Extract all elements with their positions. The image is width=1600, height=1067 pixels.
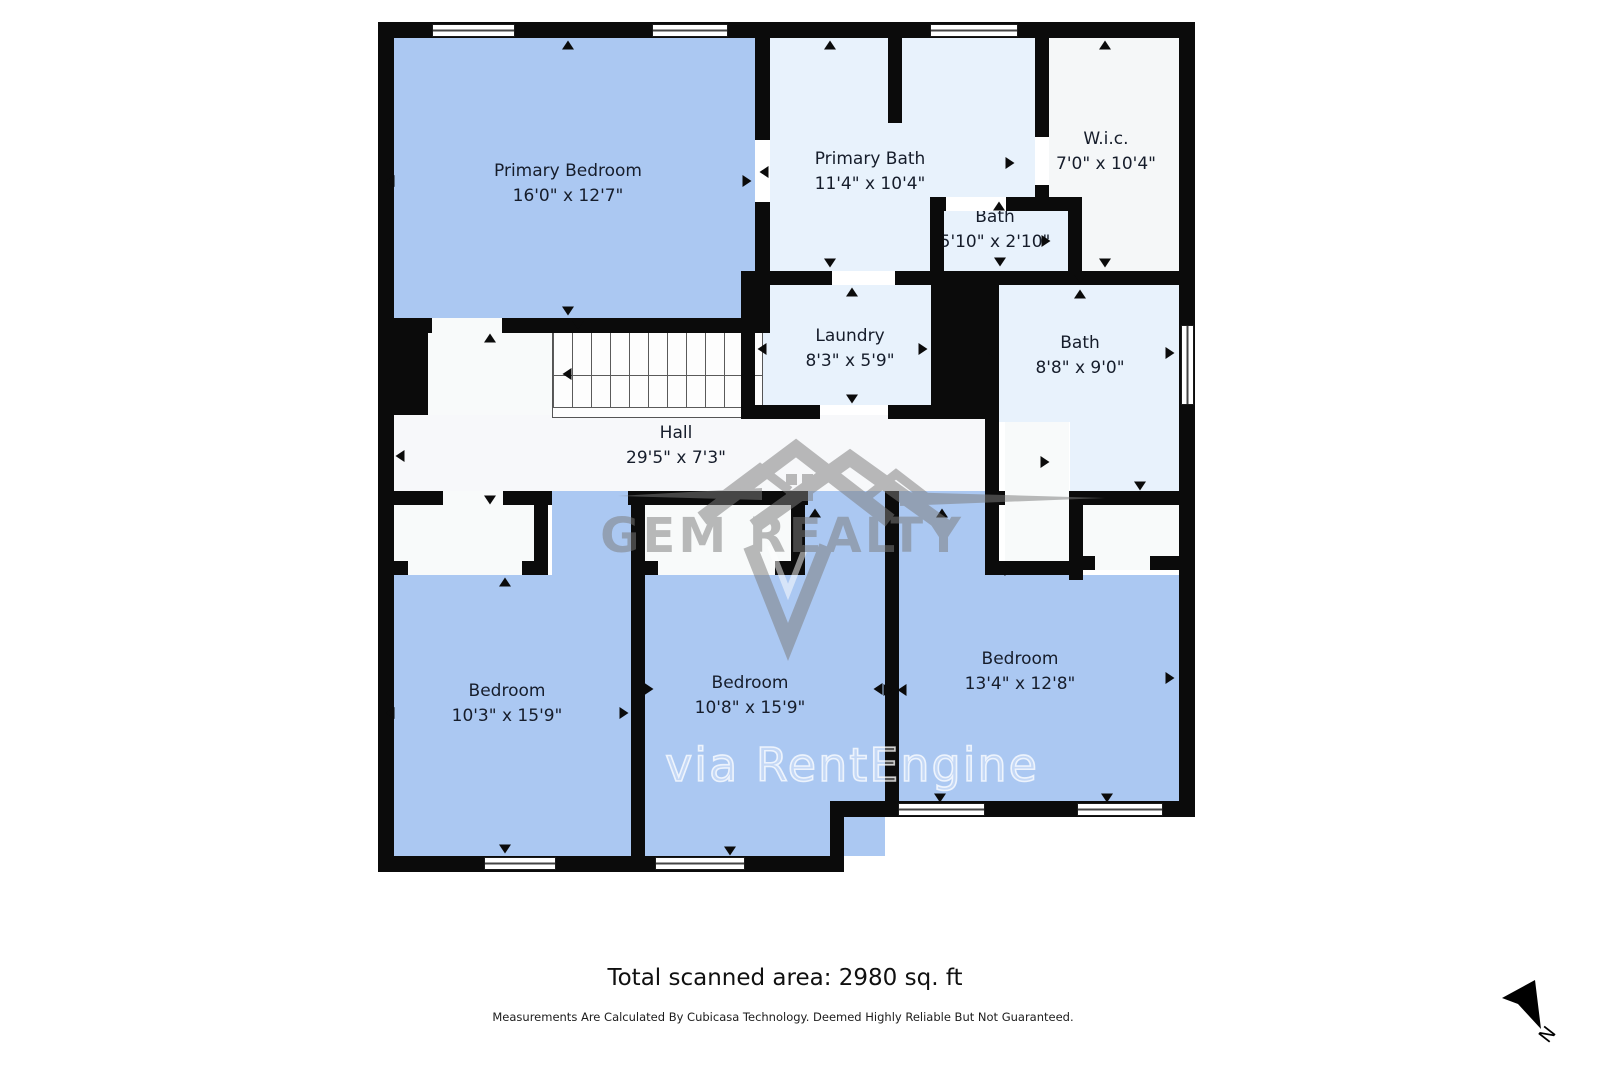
wall-segment bbox=[830, 801, 844, 872]
measure-arrow bbox=[645, 683, 654, 695]
stair-direction-arrow bbox=[563, 368, 572, 380]
total-scanned-area: Total scanned area: 2980 sq. ft bbox=[607, 965, 962, 991]
wall-segment bbox=[931, 271, 985, 419]
measure-arrow bbox=[484, 334, 496, 343]
wall-segment bbox=[741, 271, 832, 285]
room-dimensions: 10'8" x 15'9" bbox=[695, 696, 806, 721]
floorplan-canvas: Primary Bedroom16'0" x 12'7"Primary Bath… bbox=[0, 0, 1600, 1067]
measure-arrow bbox=[1074, 275, 1086, 284]
room-label-bedroom-7: Bedroom10'3" x 15'9" bbox=[452, 679, 563, 729]
wall-segment bbox=[1068, 197, 1082, 271]
window bbox=[432, 24, 515, 37]
wall-segment bbox=[522, 561, 548, 575]
gem-realty-watermark-logo: GEM REALTY bbox=[600, 430, 1120, 670]
wall-segment bbox=[394, 491, 443, 505]
measure-arrow bbox=[846, 395, 858, 404]
measure-arrow bbox=[1042, 235, 1051, 247]
measure-arrow bbox=[562, 41, 574, 50]
room-name: W.i.c. bbox=[1056, 127, 1156, 152]
room-dimensions: 16'0" x 12'7" bbox=[494, 184, 642, 209]
wall-segment bbox=[888, 405, 945, 419]
measure-arrow bbox=[993, 202, 1005, 211]
room-label-w-i-c--2: W.i.c.7'0" x 10'4" bbox=[1056, 127, 1156, 177]
room-dimensions: 11'4" x 10'4" bbox=[815, 172, 926, 197]
measure-arrow bbox=[1134, 482, 1146, 491]
measure-arrow bbox=[499, 845, 511, 854]
measure-arrow bbox=[898, 684, 907, 696]
wall-segment bbox=[930, 197, 946, 211]
room-dimensions: 13'4" x 12'8" bbox=[965, 672, 1076, 697]
measure-arrow bbox=[484, 496, 496, 505]
wall-segment bbox=[394, 318, 432, 333]
measure-arrow bbox=[396, 450, 405, 462]
room-dimensions: 5'10" x 2'10" bbox=[940, 230, 1051, 255]
north-compass-arrow: N bbox=[1460, 940, 1580, 1060]
window bbox=[655, 857, 745, 870]
measure-arrow bbox=[758, 343, 767, 355]
wall-segment bbox=[378, 856, 844, 872]
measure-arrow bbox=[1099, 41, 1111, 50]
measure-arrow bbox=[934, 794, 946, 803]
measure-arrow bbox=[572, 321, 584, 330]
measure-arrow bbox=[994, 258, 1006, 267]
room-label-bath-3: Bath5'10" x 2'10" bbox=[940, 205, 1051, 255]
measure-arrow bbox=[1074, 290, 1086, 299]
wall-segment bbox=[755, 38, 770, 140]
wall-segment bbox=[741, 285, 755, 419]
wall-segment bbox=[502, 318, 770, 333]
room-dimensions: 10'3" x 15'9" bbox=[452, 704, 563, 729]
measure-arrow bbox=[386, 707, 395, 719]
room-label-bedroom-8: Bedroom10'8" x 15'9" bbox=[695, 671, 806, 721]
stair-treads bbox=[553, 333, 762, 407]
measure-arrow bbox=[1099, 259, 1111, 268]
window bbox=[930, 24, 1018, 37]
measure-arrow bbox=[1166, 347, 1175, 359]
measure-arrow bbox=[760, 166, 769, 178]
wall-segment bbox=[394, 561, 408, 575]
window bbox=[652, 24, 728, 37]
room-dimensions: 7'0" x 10'4" bbox=[1056, 152, 1156, 177]
measure-arrow bbox=[724, 847, 736, 856]
wall-segment bbox=[755, 202, 770, 333]
room-label-primary-bath-1: Primary Bath11'4" x 10'4" bbox=[815, 147, 926, 197]
measure-arrow bbox=[846, 288, 858, 297]
measure-arrow bbox=[1166, 672, 1175, 684]
measure-arrow bbox=[988, 347, 997, 359]
measure-arrow bbox=[743, 175, 752, 187]
measure-arrow bbox=[386, 175, 395, 187]
measure-arrow bbox=[1101, 794, 1113, 803]
staircase bbox=[552, 332, 763, 418]
room-name: Bedroom bbox=[695, 671, 806, 696]
wall-segment bbox=[888, 38, 902, 123]
wall-segment bbox=[1035, 38, 1049, 137]
rentengine-watermark-text: via RentEngine bbox=[665, 738, 1039, 792]
measure-arrow bbox=[1006, 157, 1015, 169]
room-name: Bedroom bbox=[452, 679, 563, 704]
wall-segment bbox=[378, 22, 394, 872]
room-name: Primary Bath bbox=[815, 147, 926, 172]
gem-realty-watermark-text: GEM REALTY bbox=[600, 508, 964, 564]
room-dimensions: 8'3" x 5'9" bbox=[805, 349, 894, 374]
wall-segment bbox=[741, 405, 820, 419]
window bbox=[1077, 803, 1163, 816]
measure-arrow bbox=[824, 259, 836, 268]
measurement-disclaimer: Measurements Are Calculated By Cubicasa … bbox=[492, 1010, 1073, 1024]
measure-arrow bbox=[824, 41, 836, 50]
measure-arrow bbox=[620, 707, 629, 719]
wall-segment bbox=[1150, 556, 1181, 570]
room-dimensions: 8'8" x 9'0" bbox=[1035, 356, 1124, 381]
room-label-primary-bedroom-0: Primary Bedroom16'0" x 12'7" bbox=[494, 159, 642, 209]
measure-arrow bbox=[884, 684, 893, 696]
window bbox=[898, 803, 985, 816]
window bbox=[484, 857, 556, 870]
measure-arrow bbox=[919, 343, 928, 355]
room-label-bath-5: Bath8'8" x 9'0" bbox=[1035, 331, 1124, 381]
room-label-laundry-4: Laundry8'3" x 5'9" bbox=[805, 324, 894, 374]
wall-segment bbox=[394, 332, 428, 415]
wall-segment bbox=[1179, 22, 1195, 817]
wall-segment bbox=[503, 491, 552, 505]
room-name: Bath bbox=[1035, 331, 1124, 356]
measure-arrow bbox=[874, 683, 883, 695]
window bbox=[1181, 325, 1194, 405]
room-name: Primary Bedroom bbox=[494, 159, 642, 184]
measure-arrow bbox=[562, 307, 574, 316]
room-name: Laundry bbox=[805, 324, 894, 349]
measure-arrow bbox=[499, 578, 511, 587]
